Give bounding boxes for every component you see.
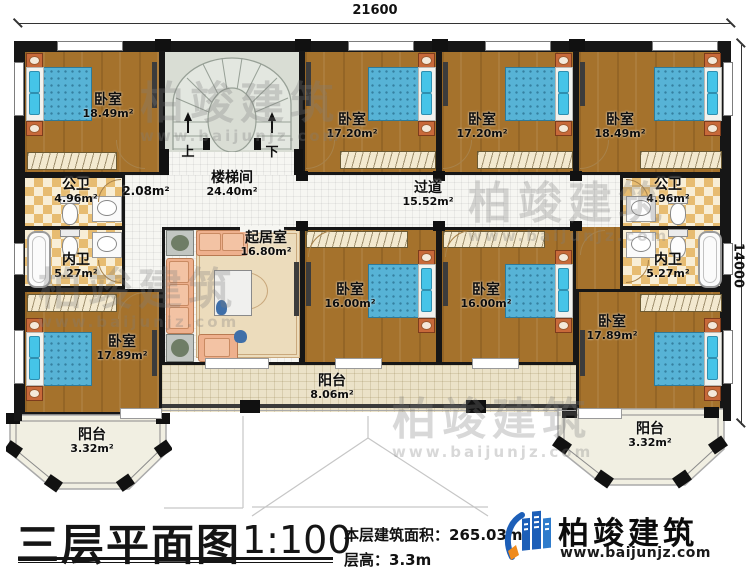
person-figure [216, 300, 227, 315]
sink [97, 236, 117, 252]
room-area: 17.20m² [456, 128, 507, 141]
sink [631, 236, 651, 252]
stairs-down-label: 下 [265, 141, 278, 160]
floor-height-label: 层高： [344, 551, 389, 569]
label-bedroom-top-right: 卧室 18.49m² [594, 112, 645, 141]
room-area: 3.32m² [70, 443, 113, 456]
room-name: 卧室 [586, 314, 637, 330]
wall-pier [433, 221, 445, 231]
room-name: 卧室 [594, 112, 645, 128]
label-bedroom-bottom-right: 卧室 17.89m² [586, 314, 637, 343]
arrow-stem [187, 121, 189, 133]
wardrobe [640, 294, 722, 312]
pillow [558, 93, 569, 115]
bathtub [698, 231, 722, 288]
tv [294, 262, 299, 316]
dimension-top: 21600 [0, 3, 750, 18]
label-balcony-center: 阳台 8.06m² [310, 373, 353, 402]
nightstand [418, 121, 435, 136]
tv [443, 262, 448, 306]
room-area: 24.40m² [206, 186, 257, 199]
dimension-right: 14000 [731, 240, 746, 292]
arrow-up-icon [268, 112, 276, 121]
stairs-up-arrow: 上 [177, 112, 199, 160]
tv [443, 62, 448, 106]
label-stairwell: 楼梯间 24.40m² [206, 170, 257, 199]
tv [306, 262, 311, 306]
nightstand [26, 386, 43, 401]
floor-height-value: 3.3m [389, 551, 431, 569]
room-area: 16.00m² [324, 298, 375, 311]
arrow-up-icon [184, 112, 192, 121]
room-area: 8.06m² [310, 389, 353, 402]
nightstand [418, 53, 435, 68]
window [723, 330, 733, 384]
balcony-center-rail-line [162, 410, 576, 411]
pillow [558, 268, 569, 290]
label-bedroom-mid1: 卧室 16.00m² [324, 282, 375, 311]
wall-pier [296, 171, 308, 181]
brand-logo-icon [500, 505, 554, 567]
sink [97, 200, 117, 216]
pillow [29, 93, 40, 115]
wall-pier [570, 221, 582, 231]
nightstand [704, 386, 721, 401]
label-private-bath-right: 内卫 5.27m² [646, 252, 689, 281]
room-name: 过道 [402, 180, 453, 196]
room-area: 4.96m² [54, 193, 97, 206]
bathtub [27, 231, 51, 288]
balcony-center-rail [162, 404, 576, 408]
room-name: 公卫 [54, 177, 97, 193]
nightstand [555, 250, 572, 265]
title-underline [18, 557, 333, 560]
pillow [29, 358, 40, 380]
nightstand [704, 318, 721, 333]
room-name: 卧室 [460, 282, 511, 298]
wardrobe [340, 151, 436, 169]
room-area: 2.08m² [122, 185, 169, 199]
toilet [62, 203, 78, 225]
window [652, 41, 718, 51]
room-name: 阳台 [70, 427, 113, 443]
window [348, 41, 414, 51]
sofa-cushion [169, 284, 189, 306]
room-area: 18.49m² [594, 128, 645, 141]
nightstand [704, 121, 721, 136]
wardrobe [27, 152, 117, 170]
balcony-door [472, 358, 519, 369]
wardrobe [477, 151, 573, 169]
label-living-room: 起居室 16.80m² [240, 230, 291, 259]
wall-pier [155, 39, 171, 51]
room-area: 5.27m² [54, 268, 97, 281]
nightstand [418, 318, 435, 333]
label-bedroom-top-left: 卧室 18.49m² [82, 92, 133, 121]
balcony-pillar [466, 400, 486, 413]
room-name: 卧室 [326, 112, 377, 128]
label-corridor: 过道 15.52m² [402, 180, 453, 209]
tv [152, 62, 157, 108]
balcony-pillar [240, 400, 260, 413]
window [14, 330, 24, 384]
label-private-bath-left: 内卫 5.27m² [54, 252, 97, 281]
room-area: 17.20m² [326, 128, 377, 141]
tv [152, 330, 157, 376]
room-name: 阳台 [628, 421, 671, 437]
window [14, 62, 24, 116]
room-area: 16.00m² [460, 298, 511, 311]
pillow [421, 71, 432, 93]
room-name: 阳台 [310, 373, 353, 389]
room-name: 楼梯间 [206, 170, 257, 186]
side-table [166, 334, 194, 362]
tv [306, 62, 311, 106]
wall-pier [569, 39, 585, 51]
sofa-cushion [169, 307, 189, 329]
room-name: 卧室 [96, 334, 147, 350]
wardrobe [27, 294, 117, 312]
nightstand [26, 53, 43, 68]
room-area: 4.96m² [646, 193, 689, 206]
room-name: 起居室 [240, 230, 291, 246]
window [14, 243, 24, 275]
side-table [166, 230, 194, 256]
label-small-hall: 2.08m² [122, 185, 169, 199]
label-public-bath-left: 公卫 4.96m² [54, 177, 97, 206]
balcony-door [335, 358, 382, 369]
pillow [707, 93, 718, 115]
stairs-down-arrow: 下 [261, 112, 283, 160]
pillow [421, 290, 432, 312]
balcony-door [578, 408, 622, 419]
room-area: 18.49m² [82, 108, 133, 121]
nightstand [555, 53, 572, 68]
room-area: 5.27m² [646, 268, 689, 281]
person-figure [234, 330, 247, 343]
nightstand [704, 53, 721, 68]
pillow [558, 71, 569, 93]
wall-pier [295, 39, 311, 51]
window [485, 41, 551, 51]
pillow [29, 71, 40, 93]
room-name: 内卫 [646, 252, 689, 268]
room-name: 卧室 [324, 282, 375, 298]
page-title: 三层平面图 [16, 511, 241, 573]
window [57, 41, 123, 51]
wardrobe [640, 151, 722, 169]
stairs-up-label: 上 [181, 141, 194, 160]
room-name: 卧室 [82, 92, 133, 108]
room-corridor [125, 175, 620, 227]
scale-label: 1:100 [242, 518, 352, 562]
room-name: 内卫 [54, 252, 97, 268]
nightstand [555, 121, 572, 136]
label-public-bath-right: 公卫 4.96m² [646, 177, 689, 206]
nightstand [26, 121, 43, 136]
floor-height-line: 层高：3.3m [344, 549, 431, 570]
sofa-cushion [204, 338, 230, 357]
room-area: 3.32m² [628, 437, 671, 450]
toilet [670, 203, 686, 225]
tv [580, 330, 585, 376]
pillow [421, 93, 432, 115]
sofa-cushion [199, 233, 221, 251]
room-area: 16.80m² [240, 246, 291, 259]
room-area: 17.89m² [96, 350, 147, 363]
label-balcony-right: 阳台 3.32m² [628, 421, 671, 450]
pillow [558, 290, 569, 312]
pillow [421, 268, 432, 290]
stair-pier [160, 149, 169, 175]
wall-pier [296, 221, 308, 231]
wall-pier [432, 39, 448, 51]
room-area: 17.89m² [586, 330, 637, 343]
room-name: 卧室 [456, 112, 507, 128]
room-area: 15.52m² [402, 196, 453, 209]
dimension-right-line [741, 45, 742, 425]
room-name: 公卫 [646, 177, 689, 193]
pillow [29, 336, 40, 358]
title-underline-thin [18, 562, 333, 563]
label-bedroom-top-mid2: 卧室 17.20m² [456, 112, 507, 141]
nightstand [26, 318, 43, 333]
window [723, 62, 733, 116]
arrow-stem [271, 121, 273, 133]
label-bedroom-top-mid1: 卧室 17.20m² [326, 112, 377, 141]
nightstand [418, 250, 435, 265]
label-balcony-left: 阳台 3.32m² [70, 427, 113, 456]
balcony-door [205, 358, 269, 369]
floor-area-label: 本层建筑面积： [344, 526, 449, 544]
pillow [707, 358, 718, 380]
wall-pier [570, 171, 582, 181]
pillow [707, 336, 718, 358]
brand-website: www.baijunjz.com [560, 545, 711, 561]
tv [580, 62, 585, 106]
pillow [707, 71, 718, 93]
sofa-cushion [169, 261, 189, 283]
balcony-door [120, 408, 162, 419]
dimension-top-line [18, 23, 731, 24]
label-bedroom-bottom-left: 卧室 17.89m² [96, 334, 147, 363]
label-bedroom-mid2: 卧室 16.00m² [460, 282, 511, 311]
floorplan-canvas: 21600 14000 [0, 0, 750, 575]
nightstand [555, 318, 572, 333]
